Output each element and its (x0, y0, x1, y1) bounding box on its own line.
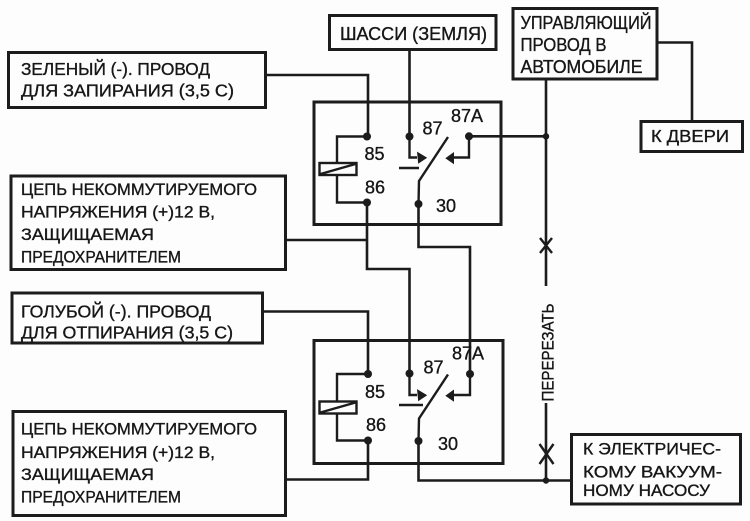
svg-text:ЗАЩИЩАЕМАЯ: ЗАЩИЩАЕМАЯ (21, 466, 154, 484)
svg-text:ДЛЯ ОТПИРАНИЯ (3,5 С): ДЛЯ ОТПИРАНИЯ (3,5 С) (21, 323, 233, 343)
svg-text:УПРАВЛЯЮЩИЙ: УПРАВЛЯЮЩИЙ (521, 12, 652, 33)
svg-text:НОМУ НАСОСУ: НОМУ НАСОСУ (583, 481, 710, 500)
svg-text:ПРЕДОХРАНИТЕЛЕМ: ПРЕДОХРАНИТЕЛЕМ (21, 249, 181, 267)
svg-text:ПРОВОД В: ПРОВОД В (521, 35, 607, 55)
svg-text:НАПРЯЖЕНИЯ (+)12 В,: НАПРЯЖЕНИЯ (+)12 В, (21, 444, 215, 462)
svg-text:87A: 87A (452, 344, 484, 364)
svg-text:85: 85 (365, 382, 385, 402)
svg-text:ДЛЯ ЗАПИРАНИЯ (3,5 С): ДЛЯ ЗАПИРАНИЯ (3,5 С) (21, 81, 234, 101)
svg-text:30: 30 (438, 434, 458, 454)
svg-text:АВТОМОБИЛЕ: АВТОМОБИЛЕ (521, 57, 643, 77)
svg-text:ЗАЩИЩАЕМАЯ: ЗАЩИЩАЕМАЯ (21, 226, 154, 244)
svg-text:К ЭЛЕКТРИЧЕС-: К ЭЛЕКТРИЧЕС- (583, 440, 721, 459)
svg-text:КОМУ ВАКУУМ-: КОМУ ВАКУУМ- (583, 463, 722, 482)
svg-text:НАПРЯЖЕНИЯ (+)12 В,: НАПРЯЖЕНИЯ (+)12 В, (21, 204, 215, 222)
svg-text:ШАССИ (ЗЕМЛЯ): ШАССИ (ЗЕМЛЯ) (340, 24, 487, 44)
svg-text:86: 86 (366, 415, 386, 435)
svg-text:86: 86 (365, 178, 385, 198)
svg-text:ЦЕПЬ НЕКОММУТИРУЕМОГО: ЦЕПЬ НЕКОММУТИРУЕМОГО (21, 421, 257, 439)
svg-text:87: 87 (424, 358, 444, 378)
svg-text:30: 30 (436, 196, 456, 216)
svg-text:ПЕРЕРЕЗАТЬ: ПЕРЕРЕЗАТЬ (540, 304, 558, 402)
svg-text:ГОЛУБОЙ (-). ПРОВОД: ГОЛУБОЙ (-). ПРОВОД (21, 301, 211, 322)
svg-text:ЦЕПЬ НЕКОММУТИРУЕМОГО: ЦЕПЬ НЕКОММУТИРУЕМОГО (21, 181, 257, 199)
svg-text:85: 85 (365, 144, 385, 164)
svg-text:ПРЕДОХРАНИТЕЛЕМ: ПРЕДОХРАНИТЕЛЕМ (21, 489, 181, 507)
svg-text:87A: 87A (451, 106, 483, 126)
svg-text:К ДВЕРИ: К ДВЕРИ (651, 126, 729, 146)
svg-text:87: 87 (423, 119, 443, 139)
svg-text:ЗЕЛЕНЫЙ (-). ПРОВОД: ЗЕЛЕНЫЙ (-). ПРОВОД (21, 58, 210, 79)
